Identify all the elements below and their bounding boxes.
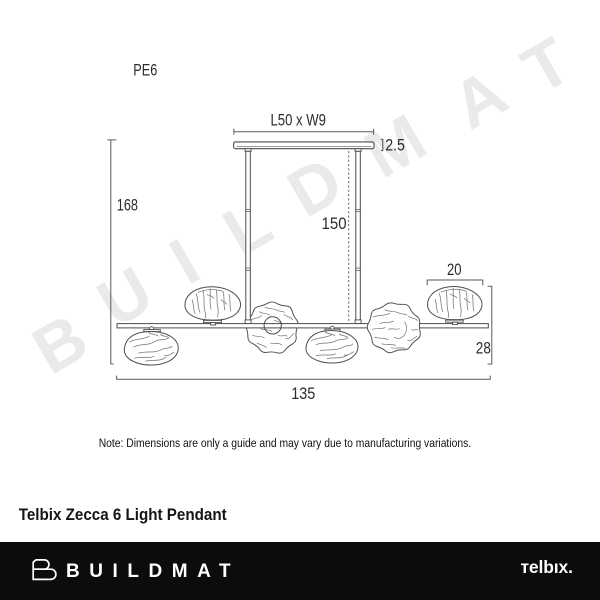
svg-text:BUILDMAT: BUILDMAT bbox=[66, 561, 240, 582]
svg-text:135: 135 bbox=[291, 385, 315, 403]
svg-text:Note: Dimensions are only a gu: Note: Dimensions are only a guide and ma… bbox=[99, 437, 471, 450]
svg-text:L50 x W9: L50 x W9 bbox=[271, 112, 326, 130]
svg-text:тelbıx.: тelbıx. bbox=[521, 557, 574, 577]
svg-text:PE6: PE6 bbox=[133, 62, 157, 80]
svg-text:2.5: 2.5 bbox=[385, 136, 405, 154]
svg-text:28: 28 bbox=[476, 339, 491, 358]
svg-text:150: 150 bbox=[322, 215, 347, 233]
svg-text:168: 168 bbox=[117, 197, 138, 215]
svg-text:Telbix Zecca 6 Light Pendant: Telbix Zecca 6 Light Pendant bbox=[19, 506, 228, 524]
svg-text:20: 20 bbox=[447, 261, 462, 279]
